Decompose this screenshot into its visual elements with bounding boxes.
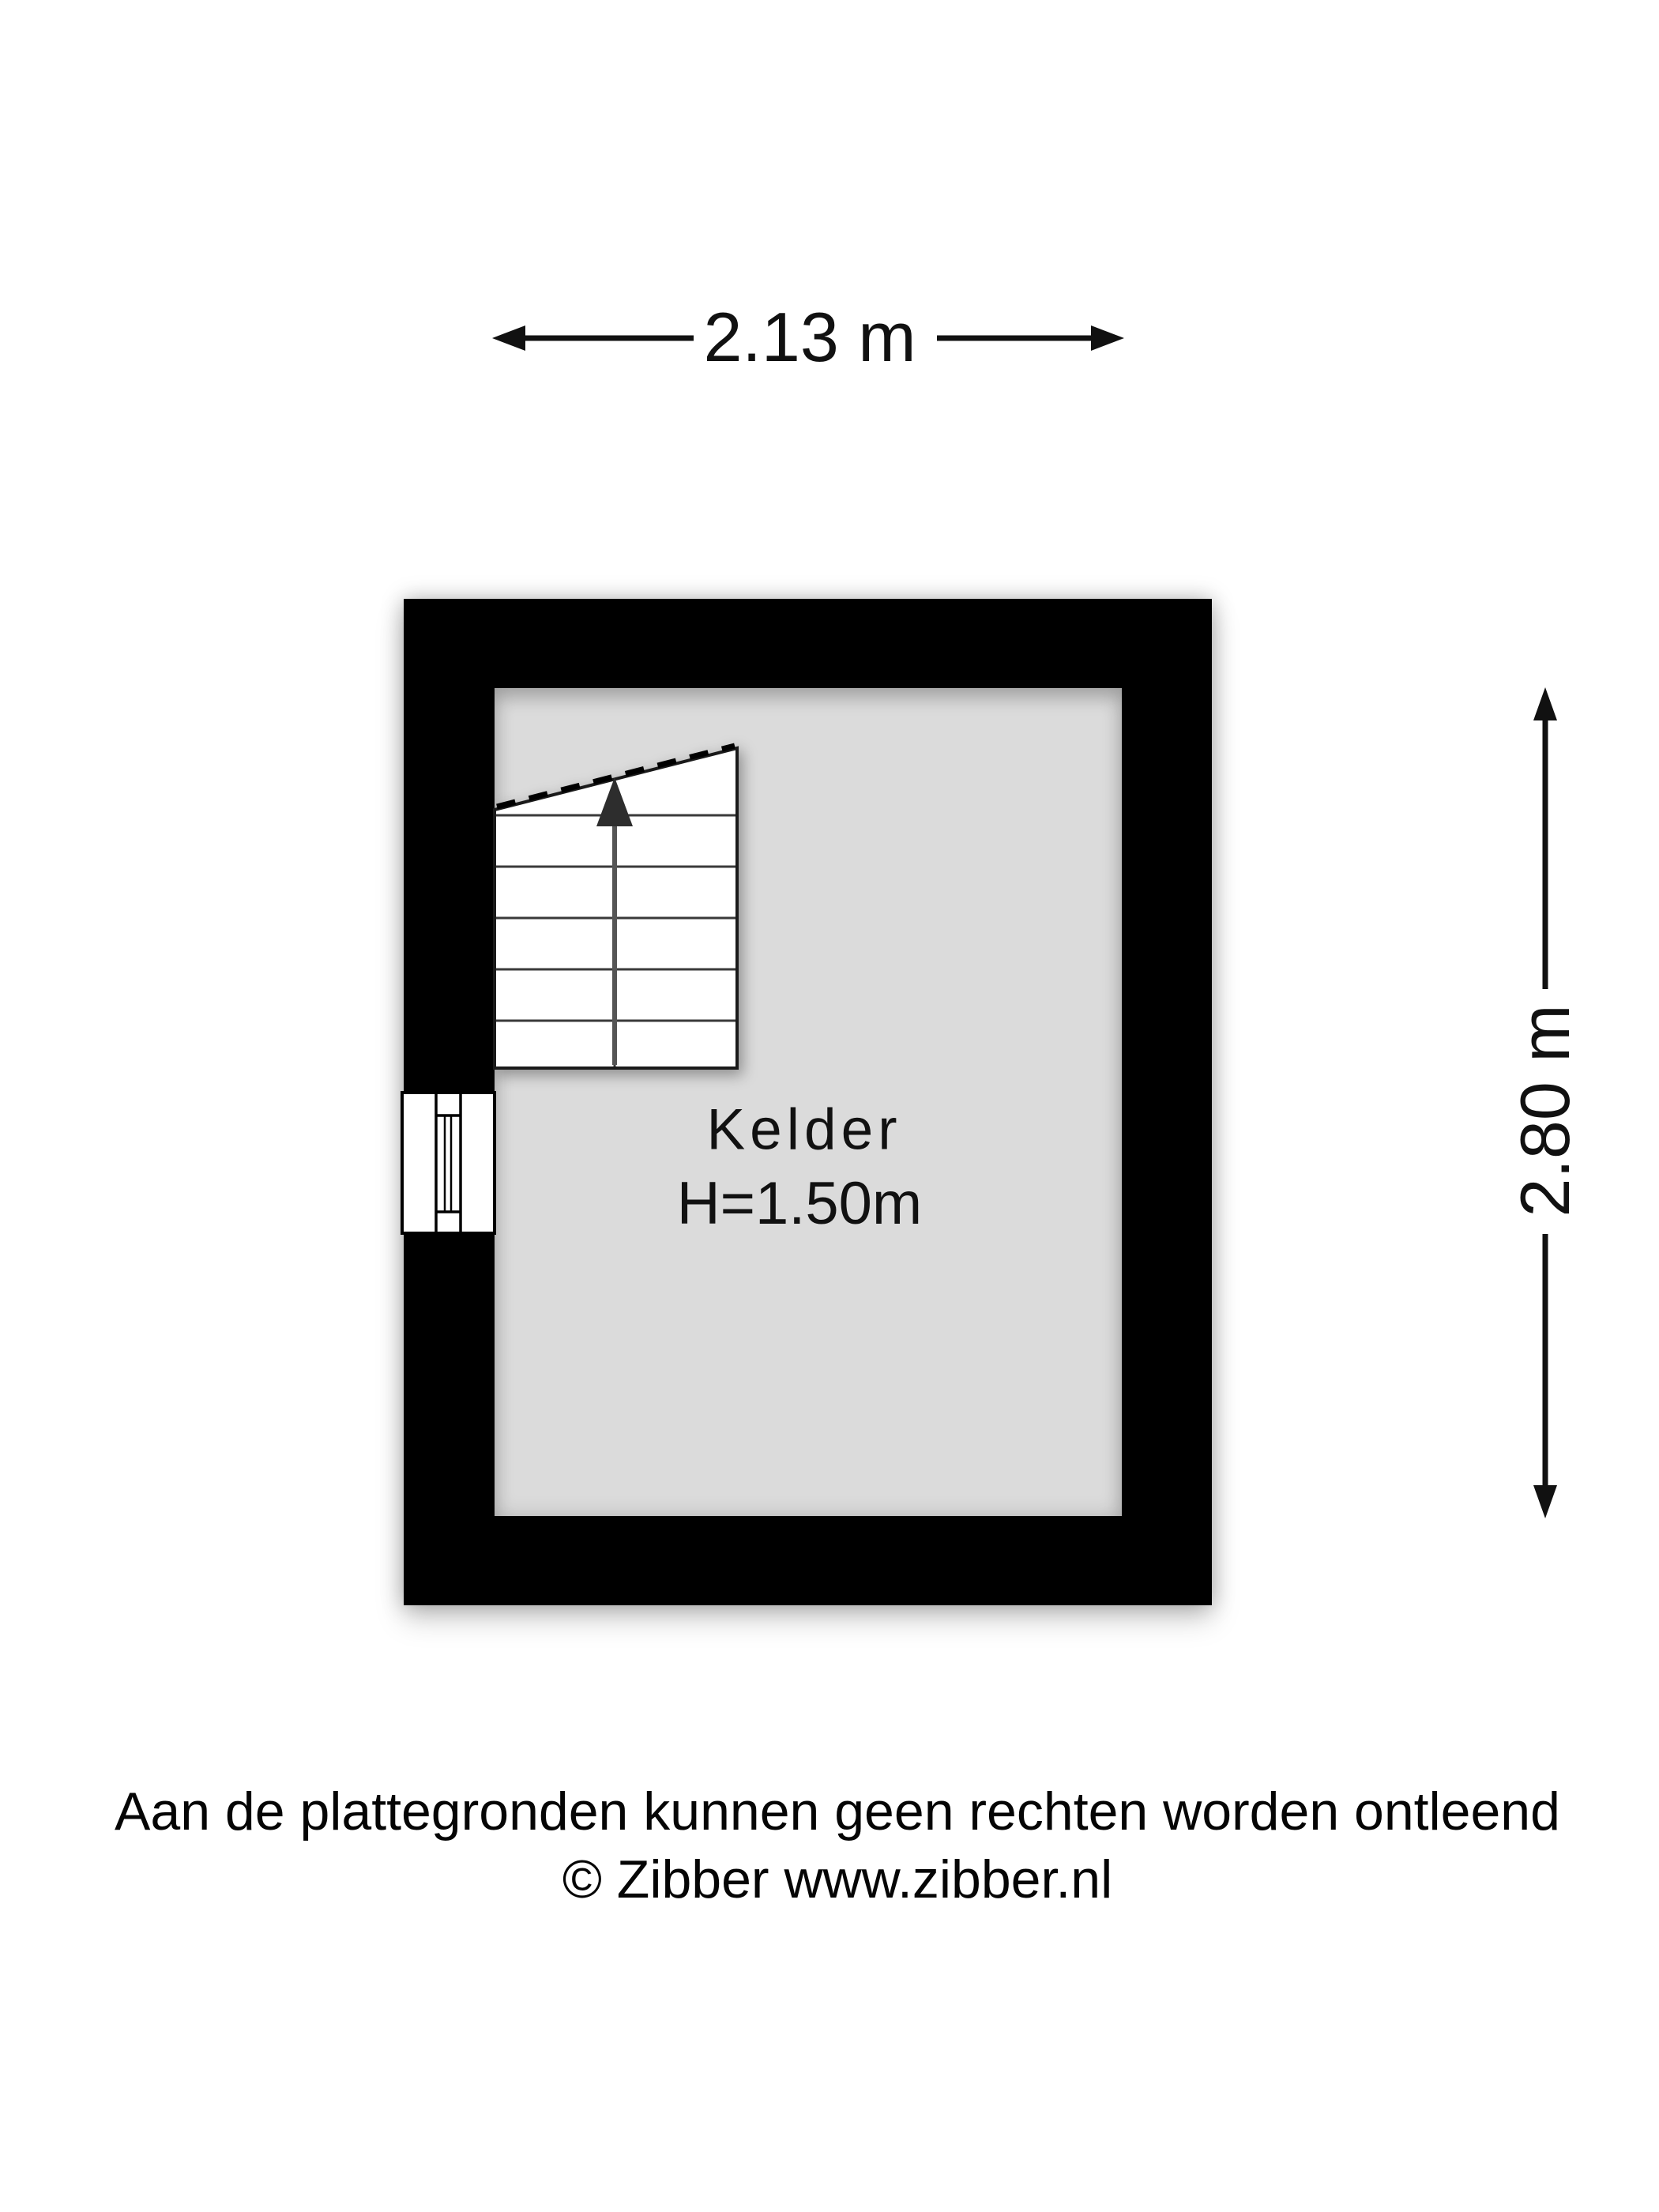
disclaimer-text: Aan de plattegronden kunnen geen rechten…	[16, 1777, 1659, 1845]
arrowhead-down-icon	[1533, 1485, 1557, 1518]
footer: Aan de plattegronden kunnen geen rechten…	[16, 1777, 1659, 1913]
room-height-label: H=1.50m	[677, 1174, 923, 1234]
floorplan-page: 2.13 m 2.80 m Kelder H=1.50m Aan de plat…	[0, 0, 1659, 2212]
copyright-text: © Zibber www.zibber.nl	[16, 1845, 1659, 1913]
arrowhead-right-icon	[1091, 325, 1124, 351]
width-dimension-label: 2.13 m	[703, 303, 916, 372]
room-name-label: Kelder	[706, 1101, 901, 1159]
arrowhead-left-icon	[492, 325, 525, 351]
height-dimension-label: 2.80 m	[1510, 1004, 1580, 1217]
arrowhead-up-icon	[1533, 687, 1557, 720]
